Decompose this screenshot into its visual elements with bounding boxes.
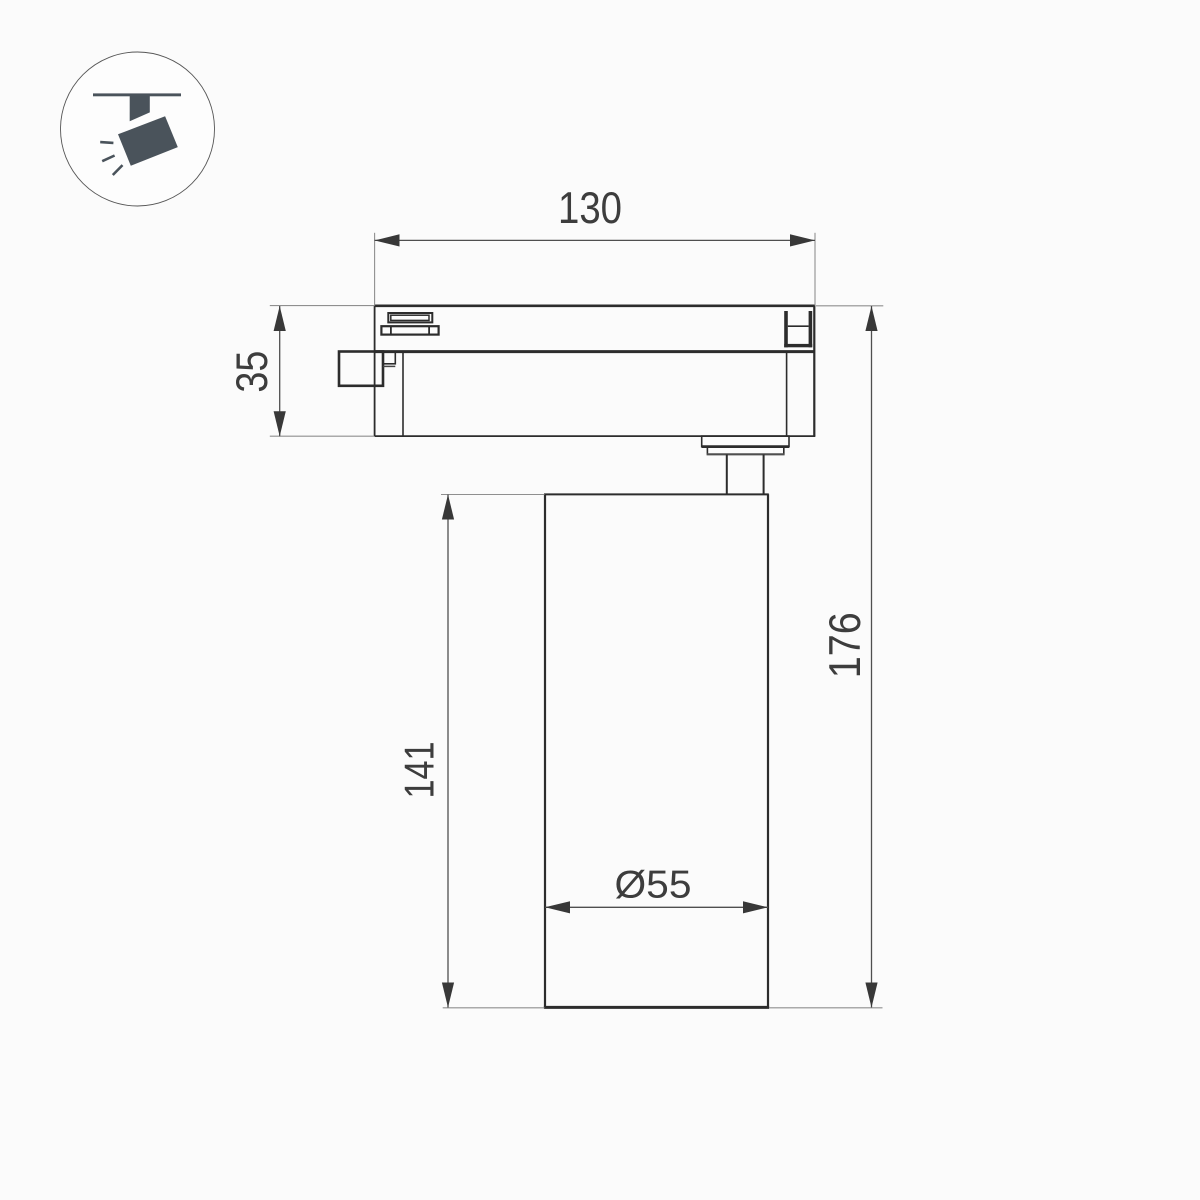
svg-text:176: 176 xyxy=(821,612,870,678)
svg-text:130: 130 xyxy=(558,184,622,233)
svg-text:Ø55: Ø55 xyxy=(615,864,692,907)
svg-text:141: 141 xyxy=(396,742,443,799)
svg-text:35: 35 xyxy=(228,351,277,393)
